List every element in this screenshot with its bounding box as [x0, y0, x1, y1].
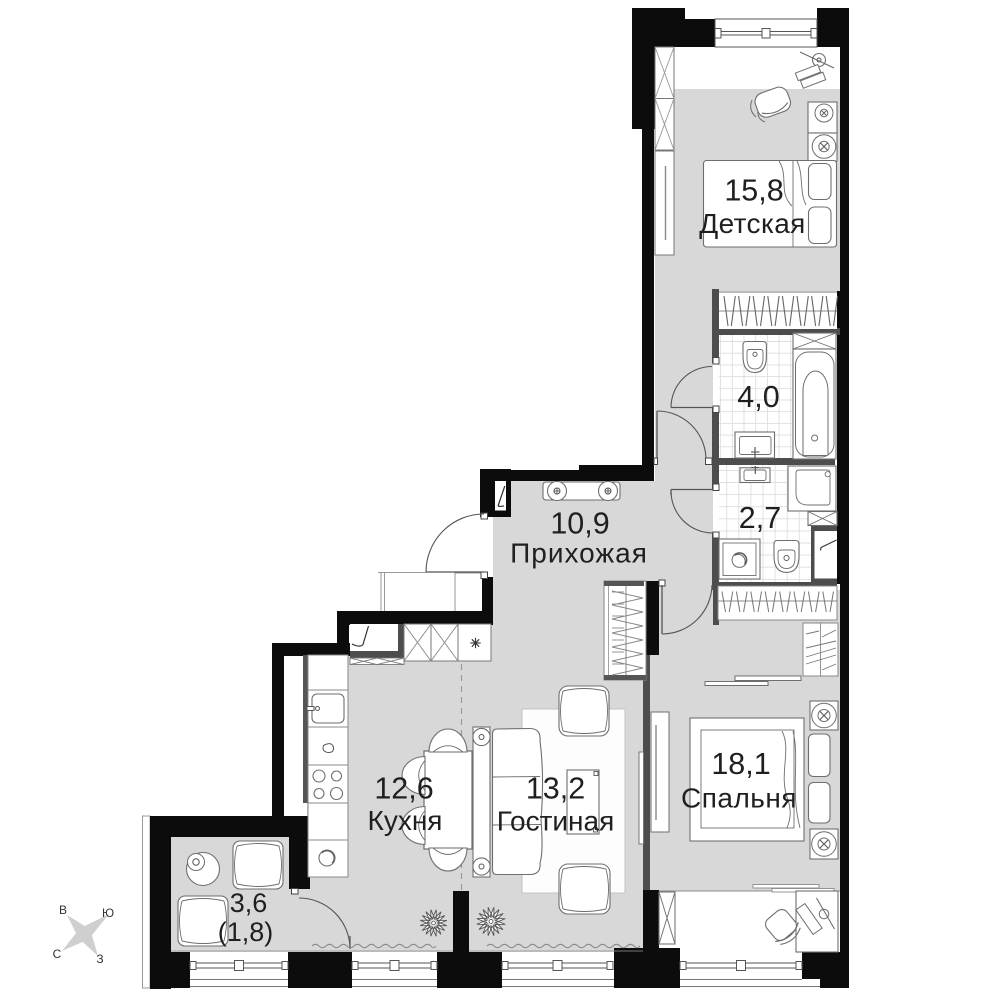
svg-text:13,2: 13,2	[526, 772, 585, 806]
svg-text:Гостиная: Гостиная	[497, 806, 615, 837]
svg-text:3,6: 3,6	[230, 888, 268, 918]
svg-text:З: З	[96, 952, 103, 966]
svg-text:12,6: 12,6	[374, 772, 433, 806]
svg-text:Детская: Детская	[699, 208, 806, 239]
svg-text:18,1: 18,1	[711, 747, 770, 781]
svg-text:2,7: 2,7	[739, 501, 781, 535]
svg-text:С: С	[53, 947, 62, 961]
svg-text:(1,8): (1,8)	[218, 917, 274, 947]
svg-text:В: В	[59, 903, 67, 917]
svg-text:10,9: 10,9	[550, 507, 609, 541]
svg-text:4,0: 4,0	[737, 380, 779, 414]
svg-text:Кухня: Кухня	[368, 805, 443, 836]
svg-text:Прихожая: Прихожая	[510, 538, 648, 569]
svg-text:15,8: 15,8	[724, 174, 783, 208]
svg-text:Ю: Ю	[102, 906, 114, 920]
svg-text:Спальня: Спальня	[681, 783, 797, 814]
